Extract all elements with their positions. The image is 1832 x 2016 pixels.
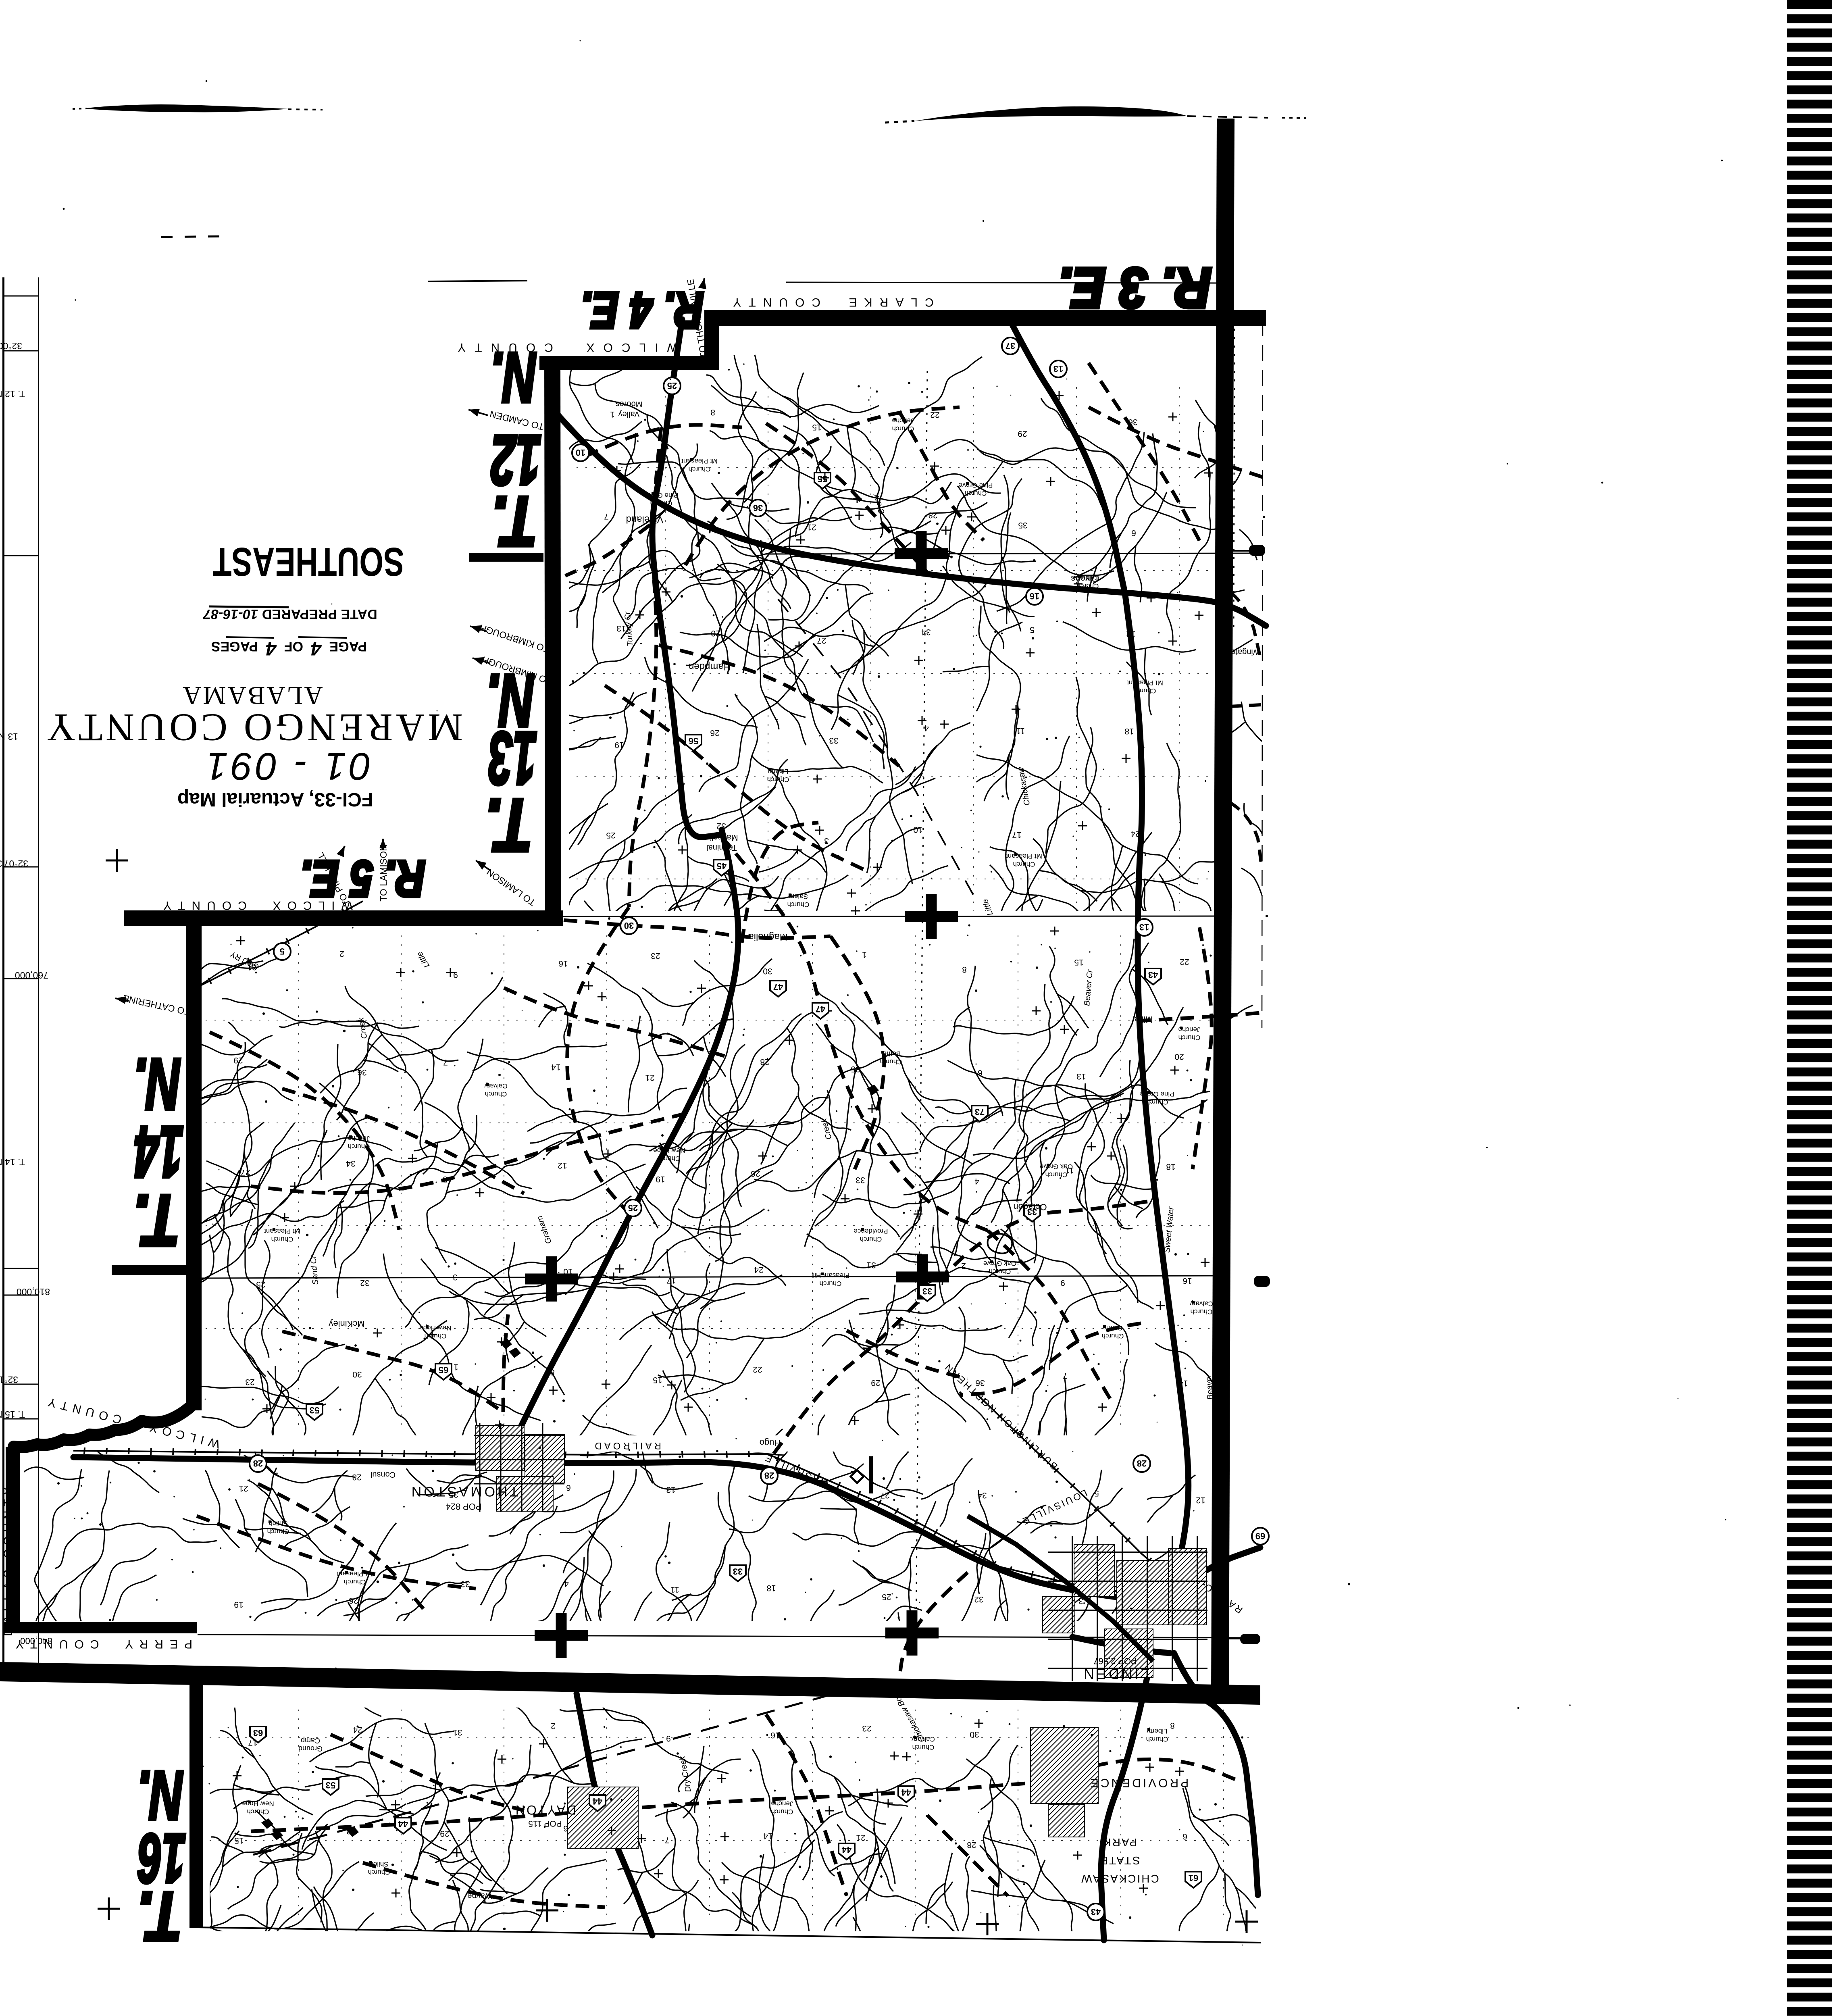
svg-text:6: 6 <box>1182 1832 1187 1841</box>
svg-text:LINDEN: LINDEN <box>1081 1666 1149 1682</box>
svg-text:TO LAMISON: TO LAMISON <box>378 844 389 901</box>
svg-text:Pine Grove: Pine Grove <box>958 481 993 489</box>
svg-text:Church: Church <box>368 1868 390 1876</box>
svg-text:4: 4 <box>974 1177 979 1186</box>
svg-text:23: 23 <box>862 1724 871 1733</box>
svg-text:14: 14 <box>763 1831 773 1841</box>
svg-text:Church: Church <box>1178 1034 1201 1041</box>
svg-text:25: 25 <box>256 1280 265 1289</box>
svg-text:24: 24 <box>754 1265 764 1275</box>
svg-text:44: 44 <box>841 1845 851 1855</box>
svg-text:21: 21 <box>807 523 816 532</box>
svg-text:Church: Church <box>912 1743 935 1751</box>
svg-text:Church: Church <box>1191 1308 1213 1316</box>
svg-text:30: 30 <box>352 1370 362 1379</box>
svg-text:Bethel: Bethel <box>881 1050 901 1058</box>
svg-text:45: 45 <box>717 861 727 871</box>
svg-text:26: 26 <box>751 1169 760 1178</box>
svg-text:McKinley: McKinley <box>329 1319 364 1329</box>
svg-text:Valley: Valley <box>618 410 640 419</box>
svg-text:30: 30 <box>970 1730 979 1739</box>
svg-text:Church: Church <box>965 489 987 497</box>
svg-text:22: 22 <box>753 1365 762 1374</box>
svg-text:7: 7 <box>1063 1371 1068 1380</box>
svg-text:Magnolia: Magnolia <box>705 833 738 842</box>
svg-text:Vineland: Vineland <box>626 514 664 525</box>
svg-text:T. 15 N.: T. 15 N. <box>0 1409 25 1420</box>
svg-text:2: 2 <box>961 1261 966 1270</box>
svg-text:32: 32 <box>974 1595 983 1604</box>
svg-text:23: 23 <box>245 1377 254 1387</box>
svg-text:31: 31 <box>453 1728 462 1737</box>
svg-text:20: 20 <box>711 629 720 638</box>
svg-text:13 N: 13 N <box>0 731 18 742</box>
svg-text:3: 3 <box>453 1272 458 1282</box>
svg-text:8: 8 <box>1170 1721 1175 1730</box>
svg-text:32: 32 <box>716 821 726 831</box>
svg-text:9: 9 <box>453 970 458 979</box>
svg-text:Oak Grove: Oak Grove <box>1040 1163 1073 1170</box>
svg-text:12: 12 <box>1196 1495 1205 1505</box>
svg-text:22: 22 <box>1180 957 1189 966</box>
svg-text:4: 4 <box>564 1579 569 1588</box>
svg-text:Church: Church <box>344 1578 366 1586</box>
svg-text:Terminal: Terminal <box>706 843 737 852</box>
svg-text:36: 36 <box>1128 417 1137 427</box>
svg-text:53: 53 <box>326 1780 335 1790</box>
svg-text:44: 44 <box>592 1796 602 1806</box>
svg-text:Church: Church <box>267 1528 289 1535</box>
svg-text:STATE: STATE <box>1099 1854 1140 1867</box>
svg-text:16: 16 <box>1182 1276 1192 1285</box>
svg-text:Church: Church <box>650 500 672 507</box>
svg-text:6: 6 <box>978 1068 983 1077</box>
svg-text:760,000: 760,000 <box>15 970 48 981</box>
svg-text:WILCOX COUNTY: WILCOX COUNTY <box>157 899 353 912</box>
svg-text:21: 21 <box>856 1833 865 1842</box>
svg-text:Mt Pleasant: Mt Pleasant <box>1006 852 1042 860</box>
svg-text:29: 29 <box>233 1056 243 1065</box>
svg-text:Camp: Camp <box>301 1737 320 1745</box>
svg-text:19: 19 <box>656 1175 665 1184</box>
svg-text:11: 11 <box>670 1585 679 1594</box>
svg-text:26: 26 <box>349 1596 358 1605</box>
svg-text:Mt Pleasant: Mt Pleasant <box>681 457 718 465</box>
svg-text:T. 12 N.: T. 12 N. <box>0 389 25 399</box>
svg-text:10: 10 <box>913 825 922 834</box>
svg-text:FCI-33, Actuarial Map: FCI-33, Actuarial Map <box>177 789 373 810</box>
svg-text:T.: T. <box>485 783 533 866</box>
svg-text:Church: Church <box>689 465 711 473</box>
svg-text:T. 14 N.: T. 14 N. <box>0 1157 25 1167</box>
svg-text:Moores: Moores <box>616 400 643 408</box>
svg-text:43: 43 <box>1148 970 1158 980</box>
svg-text:PROVIDENCE: PROVIDENCE <box>1089 1776 1189 1789</box>
svg-text:10: 10 <box>563 1267 572 1276</box>
svg-text:1: 1 <box>862 950 867 959</box>
svg-text:Hugo: Hugo <box>760 1438 781 1448</box>
svg-text:Mt Pleasant: Mt Pleasant <box>1127 679 1163 687</box>
svg-text:31: 31 <box>866 1260 876 1270</box>
svg-text:33: 33 <box>460 1579 470 1589</box>
svg-text:CLARKE COUNTY: CLARKE COUNTY <box>726 296 933 309</box>
svg-text:27: 27 <box>817 636 826 645</box>
svg-text:43: 43 <box>1091 1907 1101 1917</box>
svg-text:2: 2 <box>551 1721 556 1731</box>
svg-text:9: 9 <box>666 1734 671 1743</box>
svg-text:Church: Church <box>787 901 810 908</box>
svg-text:61: 61 <box>1189 1873 1198 1883</box>
svg-text:44: 44 <box>901 1787 911 1797</box>
svg-text:63: 63 <box>253 1728 263 1738</box>
svg-text:Shiloh: Shiloh <box>369 1860 388 1868</box>
svg-text:30: 30 <box>624 921 634 931</box>
svg-text:31: 31 <box>247 962 256 972</box>
svg-text:1: 1 <box>454 1362 458 1372</box>
svg-text:Church: Church <box>767 776 789 783</box>
svg-text:55: 55 <box>818 474 827 484</box>
svg-text:25: 25 <box>667 381 677 391</box>
svg-text:12: 12 <box>1126 629 1135 639</box>
svg-text:44: 44 <box>398 1819 408 1829</box>
svg-text:7: 7 <box>604 512 609 521</box>
svg-text:Pine Grove: Pine Grove <box>644 492 678 499</box>
svg-text:Church: Church <box>771 1808 793 1816</box>
svg-text:14: 14 <box>1178 1379 1188 1388</box>
svg-text:56: 56 <box>689 736 698 746</box>
svg-text:Church: Church <box>1013 860 1035 868</box>
svg-text:Church: Church <box>1134 687 1156 695</box>
svg-text:28: 28 <box>928 510 937 520</box>
svg-text:Church: Church <box>425 1332 447 1340</box>
svg-text:Miller: Miller <box>1132 1014 1153 1025</box>
svg-text:5: 5 <box>1094 1489 1099 1498</box>
svg-text:29: 29 <box>871 1378 880 1387</box>
svg-text:11: 11 <box>1016 726 1025 735</box>
svg-text:8: 8 <box>710 408 715 417</box>
svg-text:53: 53 <box>310 1405 319 1415</box>
svg-text:T.: T. <box>491 482 538 560</box>
svg-text:36: 36 <box>753 503 763 513</box>
svg-text:33: 33 <box>856 1175 865 1185</box>
svg-text:Church: Church <box>247 1808 269 1816</box>
svg-text:28: 28 <box>352 1472 361 1482</box>
svg-text:5: 5 <box>443 1175 448 1184</box>
svg-text:7: 7 <box>443 1058 448 1067</box>
svg-text:32°15': 32°15' <box>0 1375 18 1385</box>
svg-text:21: 21 <box>645 1073 654 1082</box>
svg-text:21: 21 <box>239 1484 248 1493</box>
svg-text:26: 26 <box>710 728 719 737</box>
svg-text:15: 15 <box>1074 958 1083 967</box>
svg-text:Wayne: Wayne <box>467 1891 492 1900</box>
svg-text:CHICKASAW: CHICKASAW <box>1080 1872 1159 1885</box>
svg-text:32: 32 <box>360 1278 369 1287</box>
svg-text:47: 47 <box>773 982 783 992</box>
svg-text:33: 33 <box>733 1566 743 1577</box>
svg-text:15: 15 <box>234 1836 244 1845</box>
svg-text:27: 27 <box>880 1491 889 1500</box>
svg-text:Church: Church <box>1146 1735 1168 1743</box>
svg-text:69: 69 <box>1255 1531 1265 1541</box>
svg-text:DALLAS COUNTY: DALLAS COUNTY <box>2 1483 15 1636</box>
svg-text:16: 16 <box>1030 591 1039 601</box>
svg-text:73: 73 <box>975 1107 985 1117</box>
svg-text:DAYTON: DAYTON <box>514 1803 576 1817</box>
svg-text:14: 14 <box>708 525 718 535</box>
svg-text:New Hope: New Hope <box>242 1800 274 1808</box>
svg-text:DATE PREPARED 10-16-87: DATE PREPARED 10-16-87 <box>202 606 377 622</box>
svg-text:1: 1 <box>610 410 615 419</box>
svg-text:29: 29 <box>1018 429 1027 438</box>
svg-text:5: 5 <box>280 946 285 956</box>
svg-text:Salem: Salem <box>1103 1324 1122 1332</box>
svg-text:17: 17 <box>1012 830 1021 839</box>
svg-text:12: 12 <box>558 1161 567 1170</box>
svg-text:16: 16 <box>770 1731 780 1740</box>
svg-text:65: 65 <box>439 1365 448 1375</box>
svg-text:POP 824: POP 824 <box>446 1502 482 1512</box>
svg-text:16: 16 <box>558 959 568 968</box>
svg-text:Church: Church <box>348 1143 370 1150</box>
svg-text:Church: Church <box>658 1155 681 1162</box>
svg-text:MARENGO COUNTY: MARENGO COUNTY <box>44 706 463 749</box>
svg-text:6: 6 <box>1131 528 1136 537</box>
svg-text:9: 9 <box>1060 1278 1065 1287</box>
svg-text:SOUTHEAST: SOUTHEAST <box>213 539 404 584</box>
svg-text:13: 13 <box>666 1485 675 1494</box>
svg-text:25: 25 <box>606 831 615 840</box>
svg-text:Octagon: Octagon <box>1013 1202 1047 1212</box>
svg-text:30: 30 <box>763 966 772 976</box>
svg-text:810,000: 810,000 <box>17 1287 50 1297</box>
svg-text:R. 3 E.: R. 3 E. <box>1058 256 1212 320</box>
svg-text:Consul: Consul <box>371 1470 396 1479</box>
svg-text:Ground: Ground <box>298 1745 323 1753</box>
svg-text:32°07'30": 32°07'30" <box>0 858 28 869</box>
svg-text:Salem: Salem <box>789 893 808 900</box>
svg-text:23: 23 <box>651 951 660 960</box>
svg-text:28: 28 <box>1137 1458 1147 1468</box>
svg-text:Church: Church <box>892 425 914 433</box>
svg-text:28: 28 <box>764 1470 774 1481</box>
svg-text:Providence: Providence <box>854 1227 888 1235</box>
svg-text:Church: Church <box>1146 1098 1168 1106</box>
svg-text:Wingate: Wingate <box>1231 648 1260 656</box>
svg-text:840,000: 840,000 <box>20 1636 52 1646</box>
svg-text:THOMASTON: THOMASTON <box>409 1484 518 1499</box>
svg-text:34: 34 <box>921 627 931 637</box>
svg-text:24: 24 <box>1130 829 1140 838</box>
svg-text:PARK: PARK <box>1102 1836 1137 1849</box>
svg-text:New Hope: New Hope <box>419 1324 451 1332</box>
svg-text:34: 34 <box>346 1159 356 1168</box>
svg-text:8: 8 <box>550 1368 555 1377</box>
svg-text:27: 27 <box>241 1168 250 1177</box>
svg-text:Mt Pleasant: Mt Pleasant <box>264 1227 300 1235</box>
svg-text:7: 7 <box>665 1835 670 1845</box>
svg-text:New Hope: New Hope <box>653 1147 685 1154</box>
svg-text:R. 4 E.: R. 4 E. <box>581 282 704 339</box>
svg-text:17: 17 <box>666 1276 676 1285</box>
svg-text:T.: T. <box>133 1180 180 1261</box>
svg-text:WILCOX COUNTY: WILCOX COUNTY <box>449 341 679 354</box>
svg-text:RAILROAD: RAILROAD <box>592 1440 661 1451</box>
svg-text:4: 4 <box>924 723 929 733</box>
svg-text:POP 2,567: POP 2,567 <box>1093 1656 1137 1666</box>
svg-text:35: 35 <box>851 1064 860 1074</box>
svg-text:18: 18 <box>1124 727 1134 736</box>
svg-text:6: 6 <box>566 1483 571 1492</box>
svg-text:Church: Church <box>1045 1171 1068 1179</box>
svg-text:2: 2 <box>339 949 344 958</box>
svg-text:Pleasant Hill: Pleasant Hill <box>812 1272 850 1279</box>
svg-text:25: 25 <box>882 1592 891 1602</box>
svg-text:Church: Church <box>1102 1332 1124 1340</box>
svg-text:Magnolia: Magnolia <box>748 931 788 942</box>
svg-text:29: 29 <box>440 1829 449 1838</box>
svg-text:28: 28 <box>967 1840 976 1849</box>
svg-text:Church: Church <box>820 1280 842 1287</box>
svg-text:25: 25 <box>628 1203 638 1213</box>
svg-text:18: 18 <box>1166 1162 1175 1171</box>
svg-text:36: 36 <box>357 1068 366 1077</box>
svg-text:10: 10 <box>576 448 585 458</box>
svg-text:22: 22 <box>930 410 939 419</box>
svg-text:8: 8 <box>962 965 967 974</box>
svg-text:Church: Church <box>880 1058 902 1066</box>
svg-text:33: 33 <box>922 1286 932 1296</box>
svg-text:13: 13 <box>1076 1072 1086 1081</box>
svg-text:14: 14 <box>551 1062 561 1072</box>
svg-text:13: 13 <box>1053 364 1063 374</box>
svg-text:19: 19 <box>234 1600 243 1609</box>
svg-text:T.: T. <box>137 1878 182 1955</box>
svg-text:33: 33 <box>829 736 838 745</box>
svg-text:Church: Church <box>485 1090 507 1098</box>
svg-text:47: 47 <box>816 1004 825 1014</box>
svg-text:19: 19 <box>614 740 624 750</box>
svg-text:Church: Church <box>860 1235 882 1243</box>
svg-text:28: 28 <box>253 1458 263 1468</box>
svg-text:36: 36 <box>975 1378 985 1387</box>
svg-text:34: 34 <box>977 1491 987 1500</box>
svg-text:Pine Grove: Pine Grove <box>1140 1090 1174 1098</box>
svg-text:5: 5 <box>1030 625 1035 634</box>
svg-text:Hampden: Hampden <box>689 661 731 672</box>
svg-text:32°00'00": 32°00'00" <box>0 341 22 351</box>
svg-text:15: 15 <box>653 1375 662 1385</box>
svg-text:Mt Pleasant: Mt Pleasant <box>337 1570 373 1578</box>
svg-text:13: 13 <box>1139 922 1149 932</box>
svg-text:37: 37 <box>1006 341 1015 351</box>
svg-text:Shiloh: Shiloh <box>269 1520 287 1527</box>
svg-text:Oak Grove: Oak Grove <box>983 1260 1016 1267</box>
svg-text:20: 20 <box>1174 1052 1184 1061</box>
svg-text:Church: Church <box>989 1268 1011 1275</box>
svg-text:15: 15 <box>812 423 821 432</box>
svg-text:Church: Church <box>271 1235 294 1243</box>
svg-text:01 - 091: 01 - 091 <box>203 745 371 788</box>
svg-text:35: 35 <box>1018 521 1027 530</box>
svg-text:18: 18 <box>766 1583 776 1593</box>
